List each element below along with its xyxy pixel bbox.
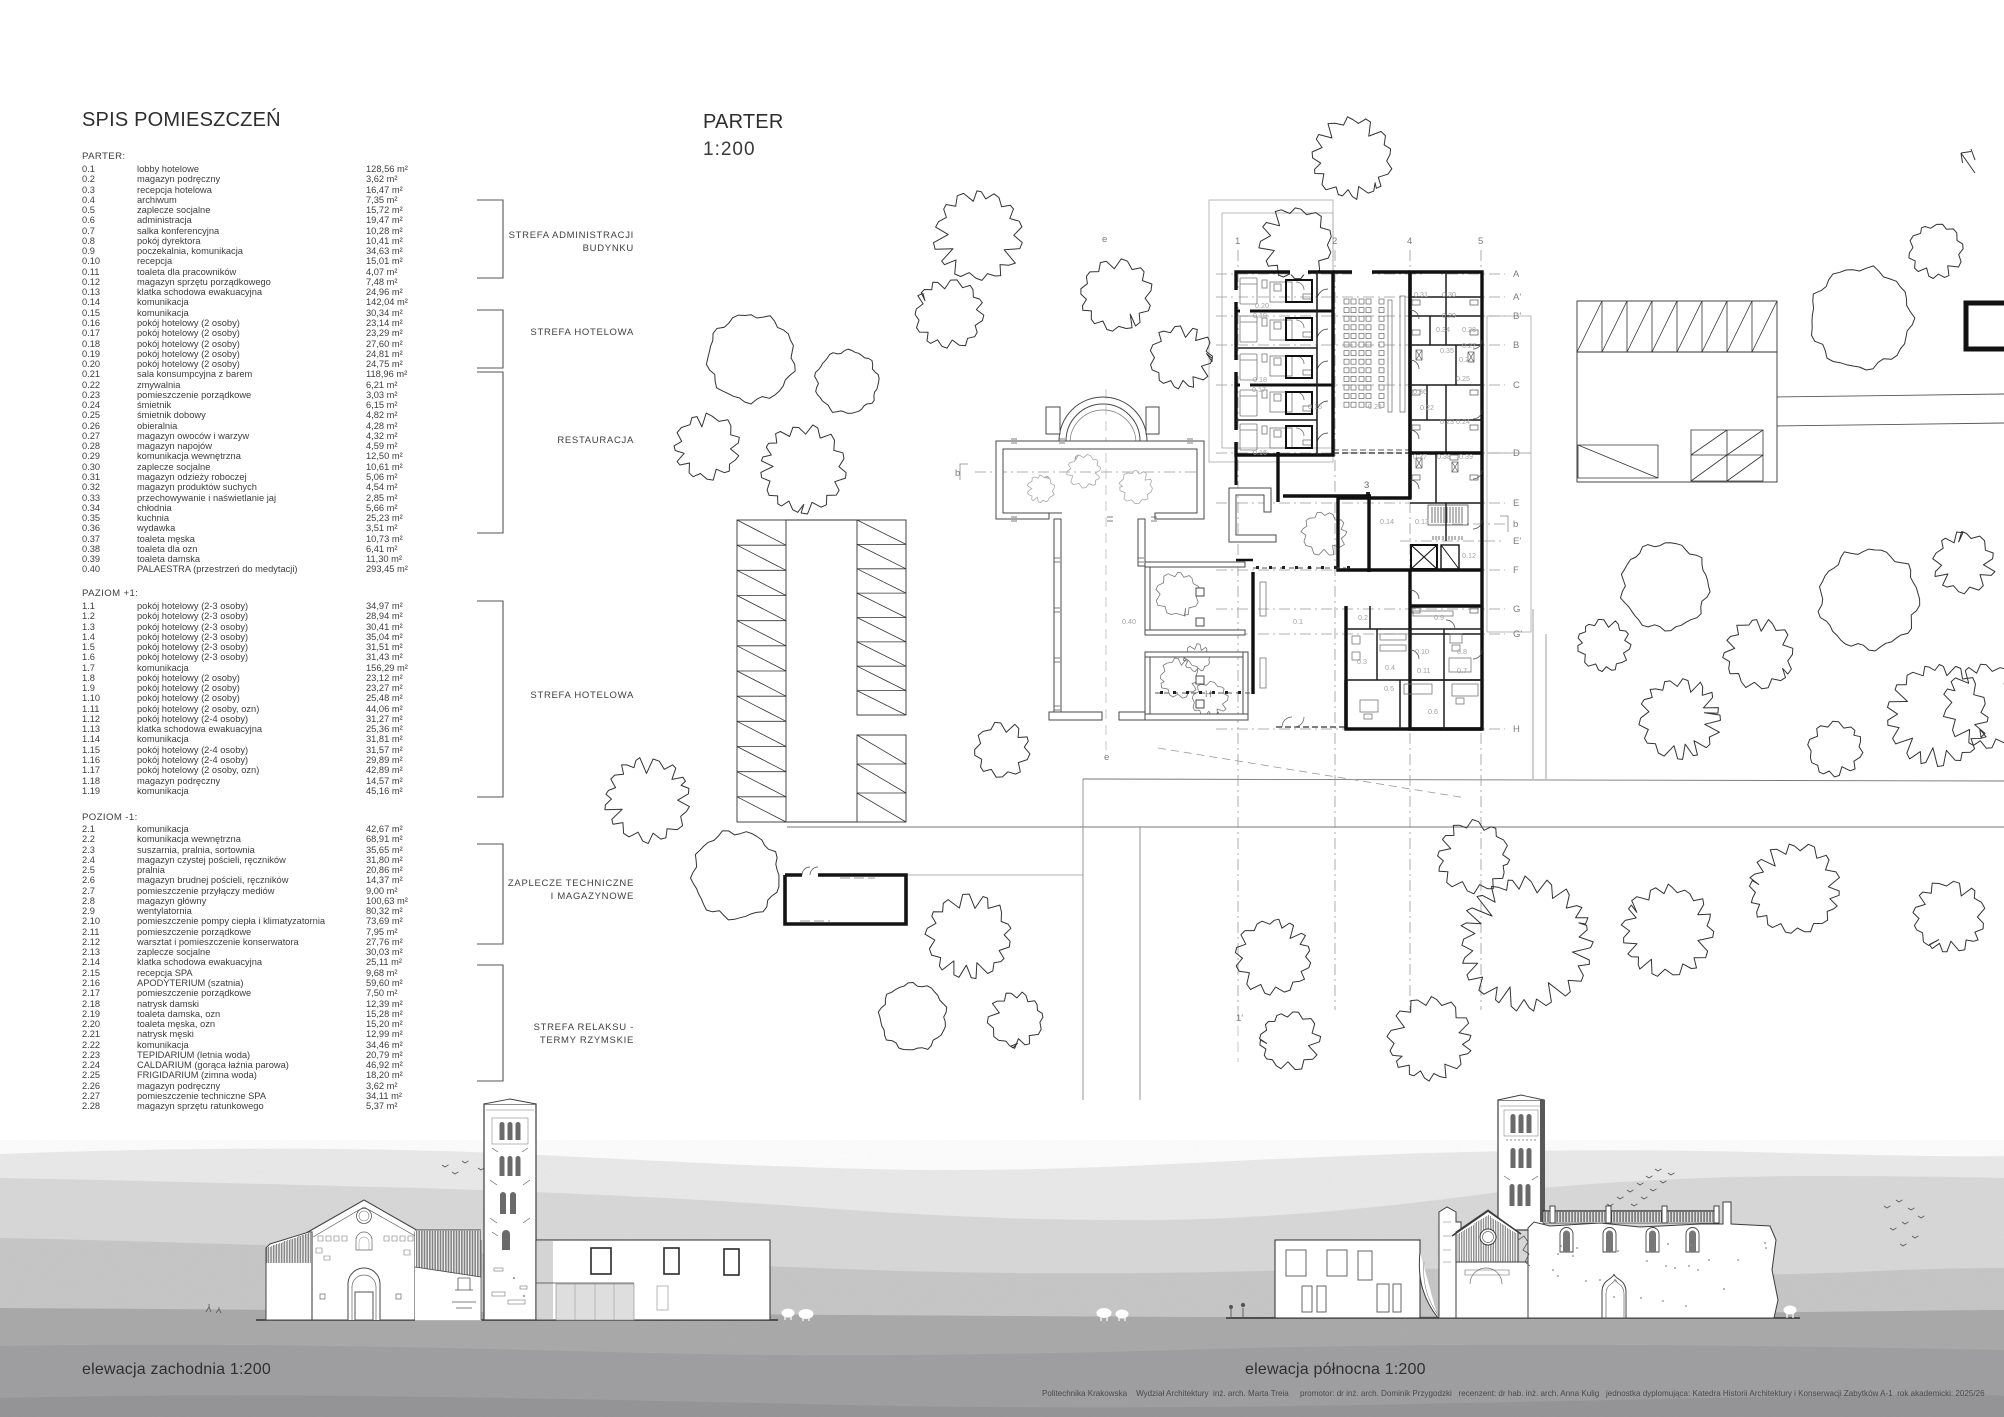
svg-text:A': A' — [1513, 292, 1521, 303]
svg-text:0.12: 0.12 — [1462, 551, 1476, 560]
svg-text:1': 1' — [1236, 1013, 1243, 1024]
svg-text:b: b — [1513, 519, 1518, 530]
svg-text:0.10: 0.10 — [1415, 647, 1429, 656]
svg-text:0.29: 0.29 — [1442, 311, 1456, 320]
svg-text:0.25: 0.25 — [1456, 374, 1470, 383]
svg-text:0.26: 0.26 — [1459, 355, 1473, 364]
svg-text:5: 5 — [1478, 236, 1483, 247]
svg-text:0.36: 0.36 — [1413, 387, 1427, 396]
svg-text:0.14: 0.14 — [1380, 517, 1394, 526]
svg-text:0.34: 0.34 — [1436, 325, 1450, 334]
svg-text:e: e — [1104, 752, 1109, 763]
svg-text:0.35: 0.35 — [1440, 346, 1454, 355]
svg-text:2: 2 — [1332, 236, 1337, 247]
svg-text:B': B' — [1513, 311, 1521, 322]
svg-text:0.7: 0.7 — [1457, 666, 1467, 675]
svg-text:0.23: 0.23 — [1440, 417, 1454, 426]
svg-text:0.4: 0.4 — [1385, 663, 1395, 672]
svg-text:1: 1 — [1235, 236, 1240, 247]
svg-text:0.3: 0.3 — [1357, 657, 1367, 666]
svg-text:E: E — [1513, 498, 1519, 509]
svg-text:0.5: 0.5 — [1384, 684, 1394, 693]
svg-text:H: H — [1513, 724, 1520, 735]
svg-text:0.27: 0.27 — [1462, 341, 1476, 350]
svg-text:0.30: 0.30 — [1442, 290, 1456, 299]
svg-text:3: 3 — [1364, 480, 1369, 491]
svg-text:A: A — [1513, 269, 1520, 280]
svg-text:0.18: 0.18 — [1253, 375, 1267, 384]
svg-text:0.39: 0.39 — [1459, 452, 1473, 461]
svg-text:0.38: 0.38 — [1437, 452, 1451, 461]
svg-text:0.6: 0.6 — [1428, 707, 1438, 716]
svg-text:0.37: 0.37 — [1413, 452, 1427, 461]
svg-text:0.22: 0.22 — [1420, 403, 1434, 412]
svg-text:0.2: 0.2 — [1358, 613, 1368, 622]
svg-text:0.11: 0.11 — [1417, 666, 1430, 675]
svg-text:0.19: 0.19 — [1253, 311, 1267, 320]
svg-text:e: e — [1102, 234, 1107, 245]
svg-text:0.28: 0.28 — [1462, 325, 1476, 334]
svg-text:0.1: 0.1 — [1293, 617, 1303, 626]
svg-text:0.24: 0.24 — [1456, 417, 1470, 426]
svg-text:0.15: 0.15 — [1308, 402, 1322, 411]
svg-text:G': G' — [1513, 629, 1522, 640]
svg-text:b: b — [955, 468, 960, 479]
svg-text:D: D — [1513, 448, 1520, 459]
svg-text:0.13: 0.13 — [1415, 517, 1429, 526]
svg-text:0.9: 0.9 — [1434, 613, 1444, 622]
svg-text:H: H — [1205, 689, 1212, 700]
svg-text:E': E' — [1513, 536, 1521, 547]
svg-text:0.17: 0.17 — [1252, 385, 1266, 394]
svg-text:0.8: 0.8 — [1457, 647, 1467, 656]
svg-text:G: G — [1513, 604, 1520, 615]
svg-text:0.20: 0.20 — [1255, 301, 1269, 310]
svg-text:0.40: 0.40 — [1122, 617, 1136, 626]
svg-text:0.16: 0.16 — [1253, 448, 1267, 457]
svg-text:C: C — [1513, 380, 1520, 391]
svg-text:4: 4 — [1407, 236, 1412, 247]
svg-text:F: F — [1513, 565, 1519, 576]
svg-text:0.21: 0.21 — [1368, 402, 1382, 411]
svg-text:0.31: 0.31 — [1414, 290, 1428, 299]
svg-text:B: B — [1513, 340, 1519, 351]
